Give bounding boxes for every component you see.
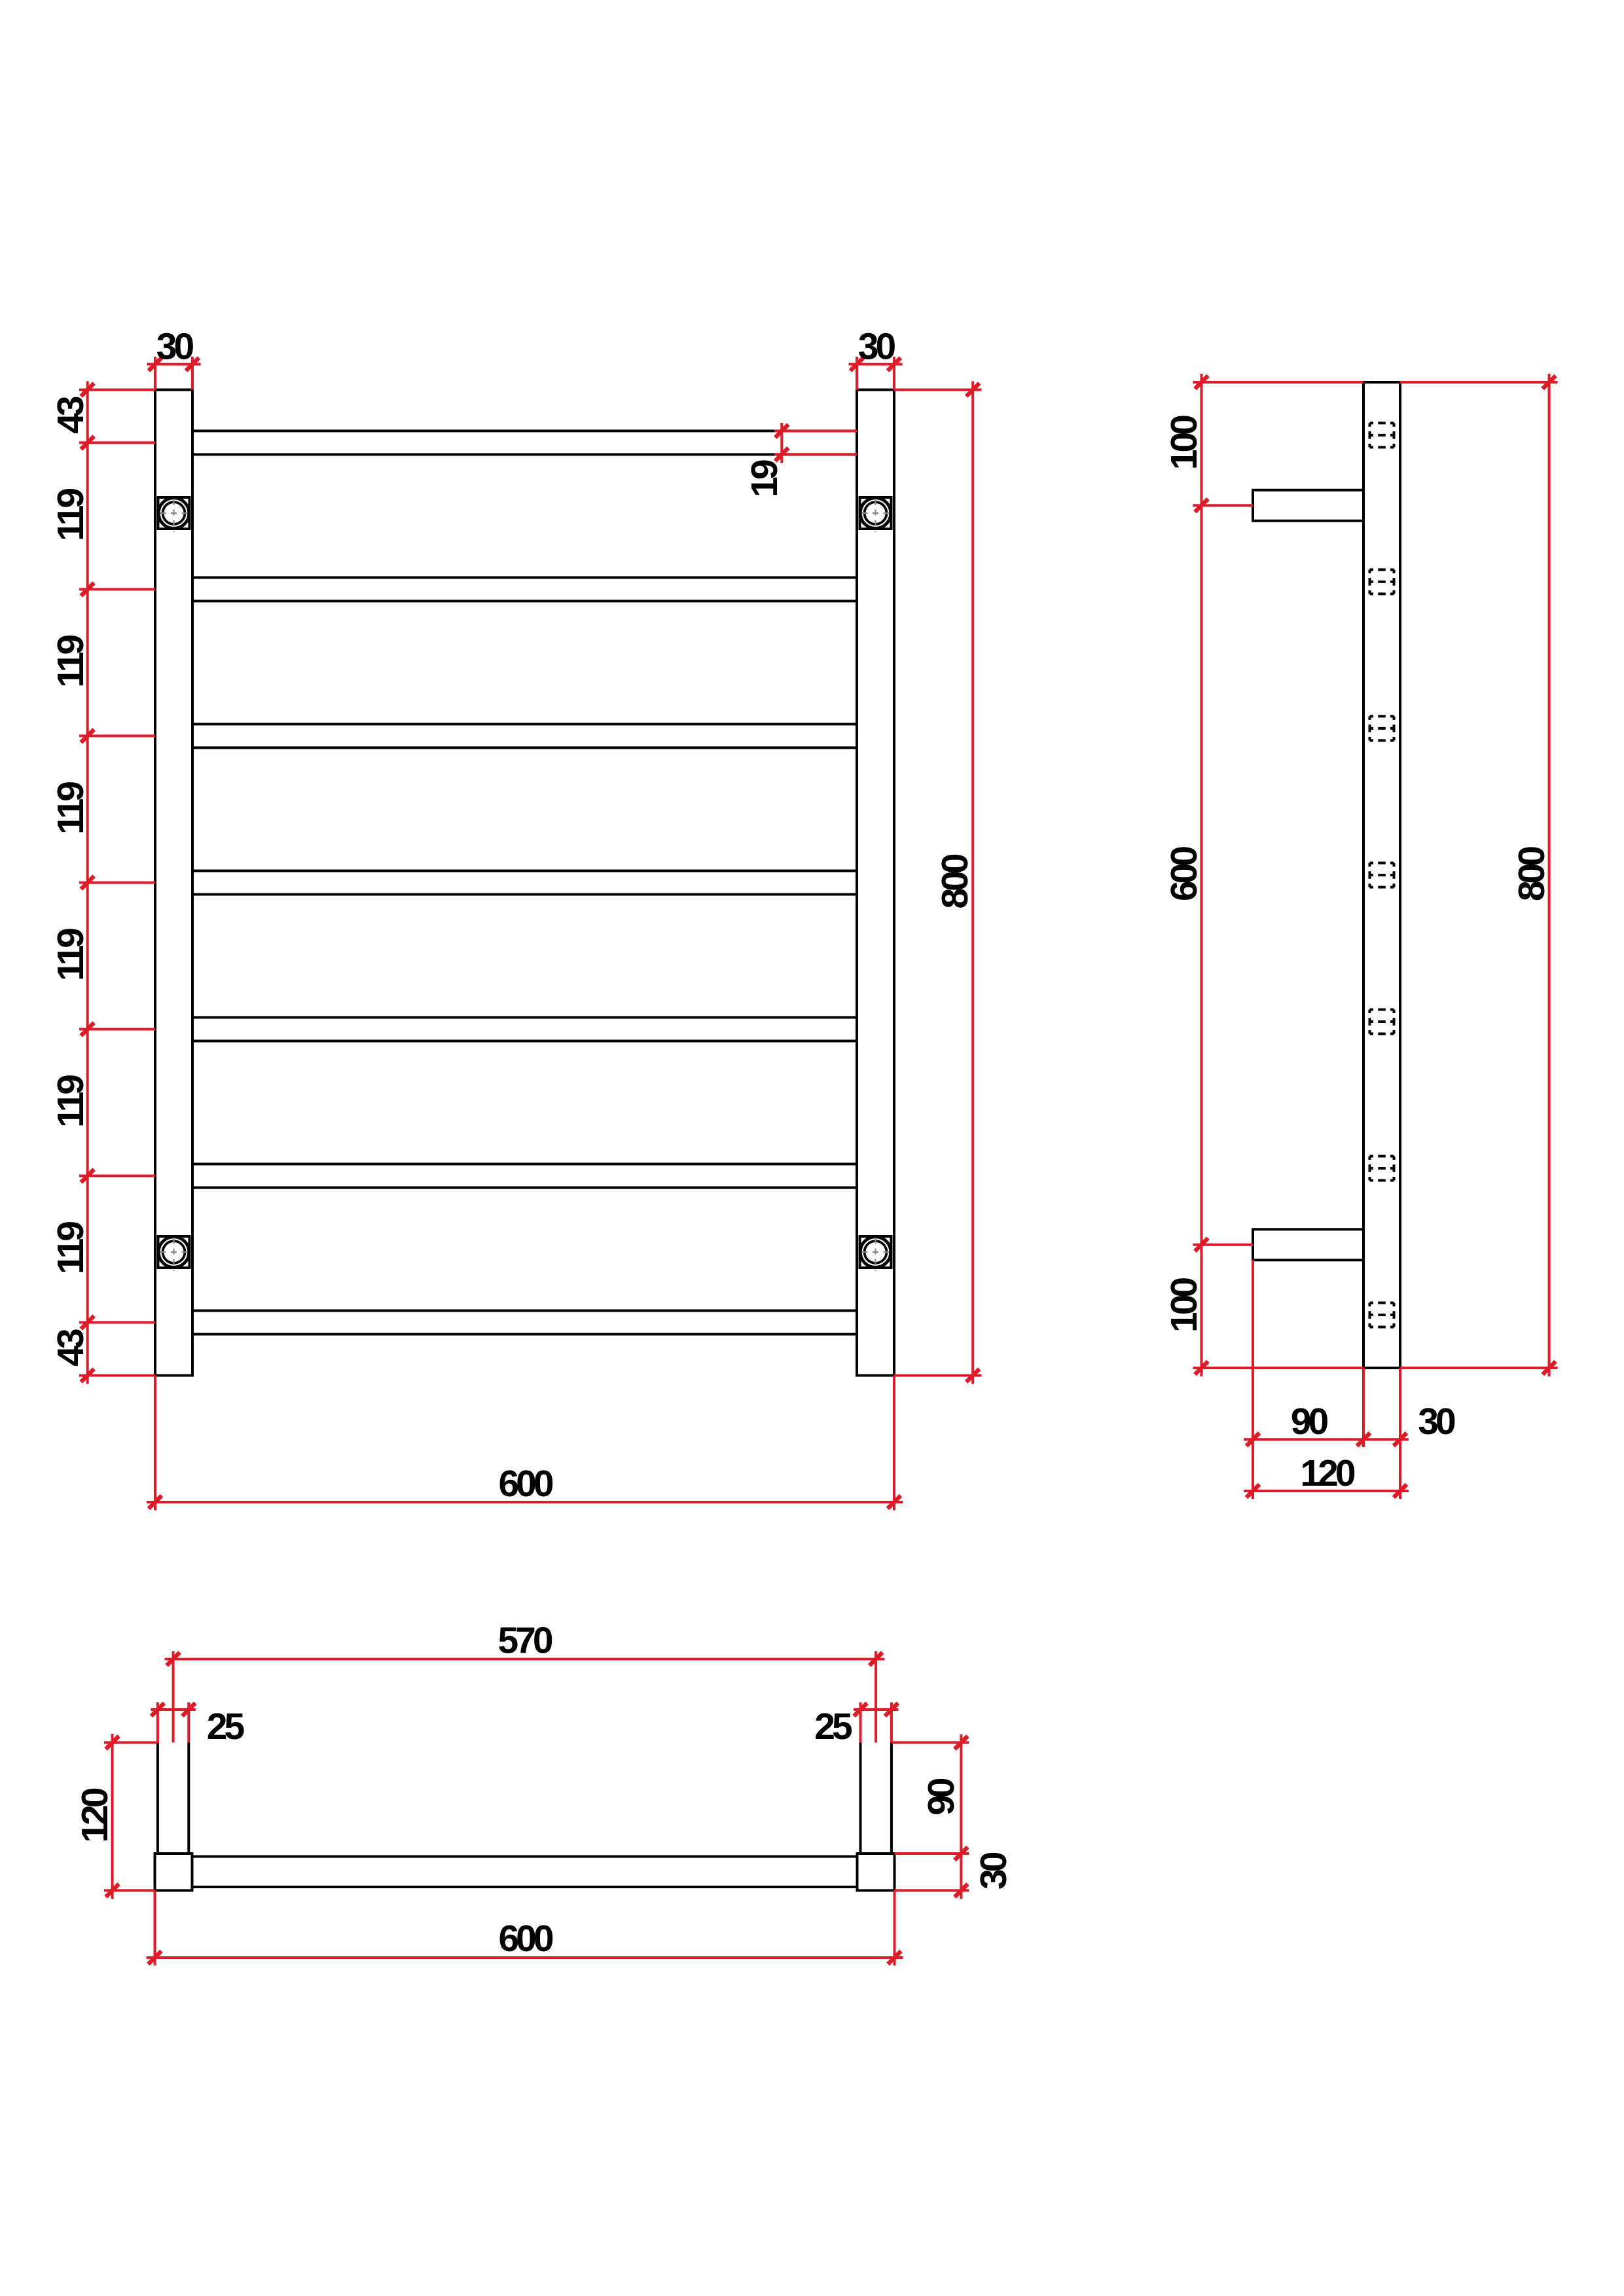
- svg-text:30: 30: [1418, 1401, 1455, 1443]
- svg-text:100: 100: [1163, 416, 1205, 470]
- svg-text:570: 570: [497, 1620, 552, 1662]
- svg-text:800: 800: [1511, 847, 1553, 901]
- svg-text:600: 600: [498, 1918, 552, 1960]
- svg-text:43: 43: [50, 1329, 92, 1367]
- svg-text:90: 90: [1291, 1401, 1328, 1443]
- svg-text:120: 120: [74, 1788, 116, 1842]
- svg-text:600: 600: [1163, 847, 1205, 901]
- svg-text:119: 119: [50, 636, 92, 688]
- svg-text:25: 25: [814, 1706, 852, 1748]
- svg-text:119: 119: [50, 1222, 92, 1274]
- svg-text:30: 30: [858, 326, 895, 368]
- svg-text:119: 119: [50, 489, 92, 541]
- svg-text:30: 30: [156, 326, 194, 368]
- svg-text:25: 25: [207, 1706, 245, 1748]
- svg-text:119: 119: [50, 782, 92, 834]
- svg-text:600: 600: [498, 1463, 552, 1505]
- svg-text:800: 800: [934, 854, 976, 908]
- svg-text:120: 120: [1300, 1452, 1354, 1494]
- svg-text:90: 90: [920, 1778, 962, 1816]
- svg-text:43: 43: [50, 397, 92, 434]
- svg-text:30: 30: [973, 1852, 1015, 1890]
- svg-text:119: 119: [50, 929, 92, 981]
- svg-text:119: 119: [50, 1075, 92, 1128]
- svg-text:19: 19: [744, 460, 785, 497]
- svg-text:100: 100: [1163, 1278, 1205, 1333]
